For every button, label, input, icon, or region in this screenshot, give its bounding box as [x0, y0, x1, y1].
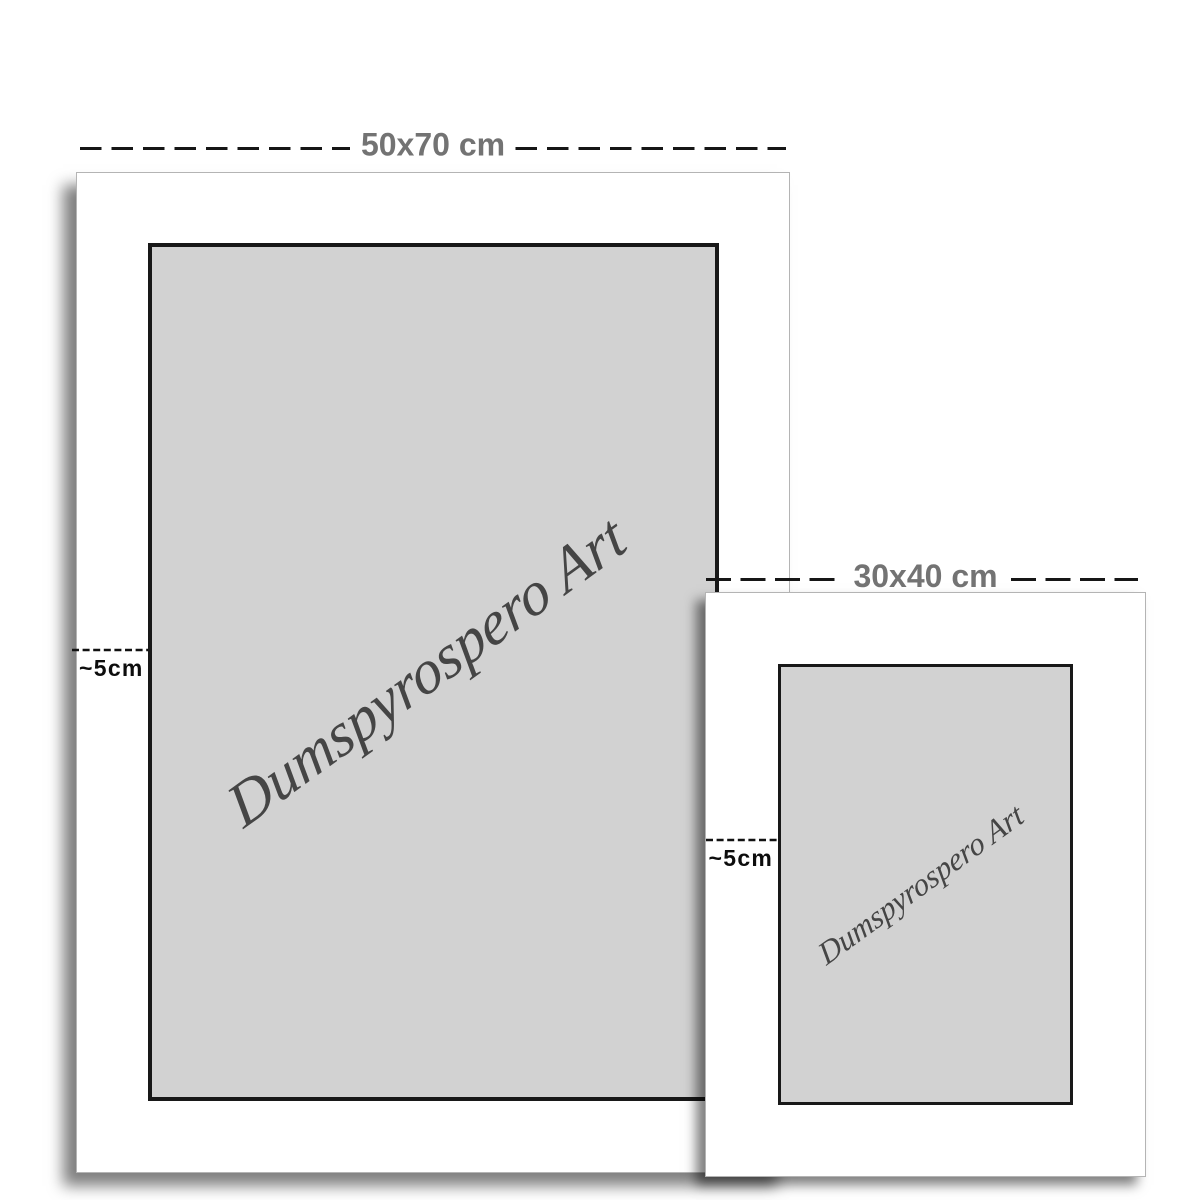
svg-text:~5cm: ~5cm: [79, 655, 144, 681]
svg-text:50x70 cm: 50x70 cm: [361, 127, 505, 163]
svg-text:~5cm: ~5cm: [709, 845, 774, 871]
svg-text:30x40 cm: 30x40 cm: [853, 558, 997, 594]
